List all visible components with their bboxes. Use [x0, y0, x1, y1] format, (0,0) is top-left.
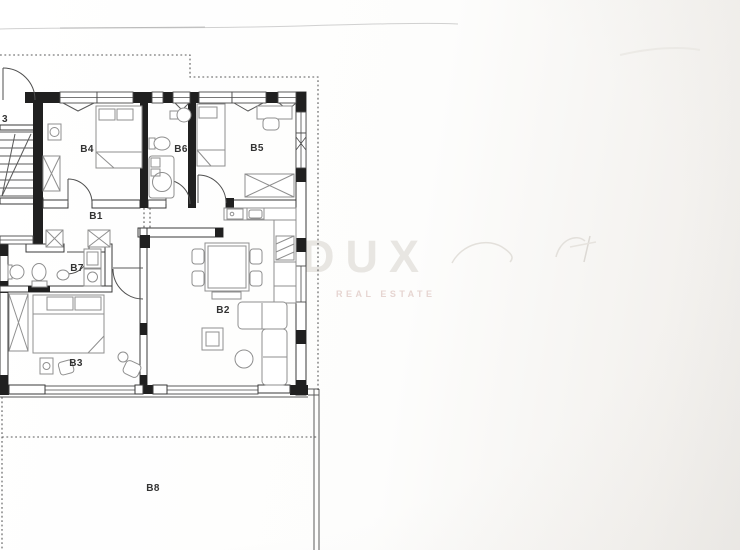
- room-label-b4: B4: [80, 144, 94, 155]
- room-label-b3: B3: [69, 358, 83, 369]
- room-label-stairwell: 3: [2, 114, 8, 125]
- room-label-b2: B2: [216, 305, 230, 316]
- room-label-b6: B6: [174, 144, 188, 155]
- terrace-boundary: [0, 389, 319, 550]
- furniture-bathroom-b7: [8, 249, 101, 287]
- furniture-hall-closets: [46, 230, 110, 247]
- room-label-b5: B5: [250, 143, 264, 154]
- furniture-bedroom-b5: [197, 104, 294, 197]
- floorplan-drawing: B1 B2 B3 B4 B5 B6 B7 B8 3: [0, 0, 740, 550]
- floorplan-page: DUX REAL ESTATE: [0, 0, 740, 550]
- room-label-b7: B7: [70, 263, 84, 274]
- room-label-b8: B8: [146, 483, 160, 494]
- room-label-b1: B1: [89, 211, 103, 222]
